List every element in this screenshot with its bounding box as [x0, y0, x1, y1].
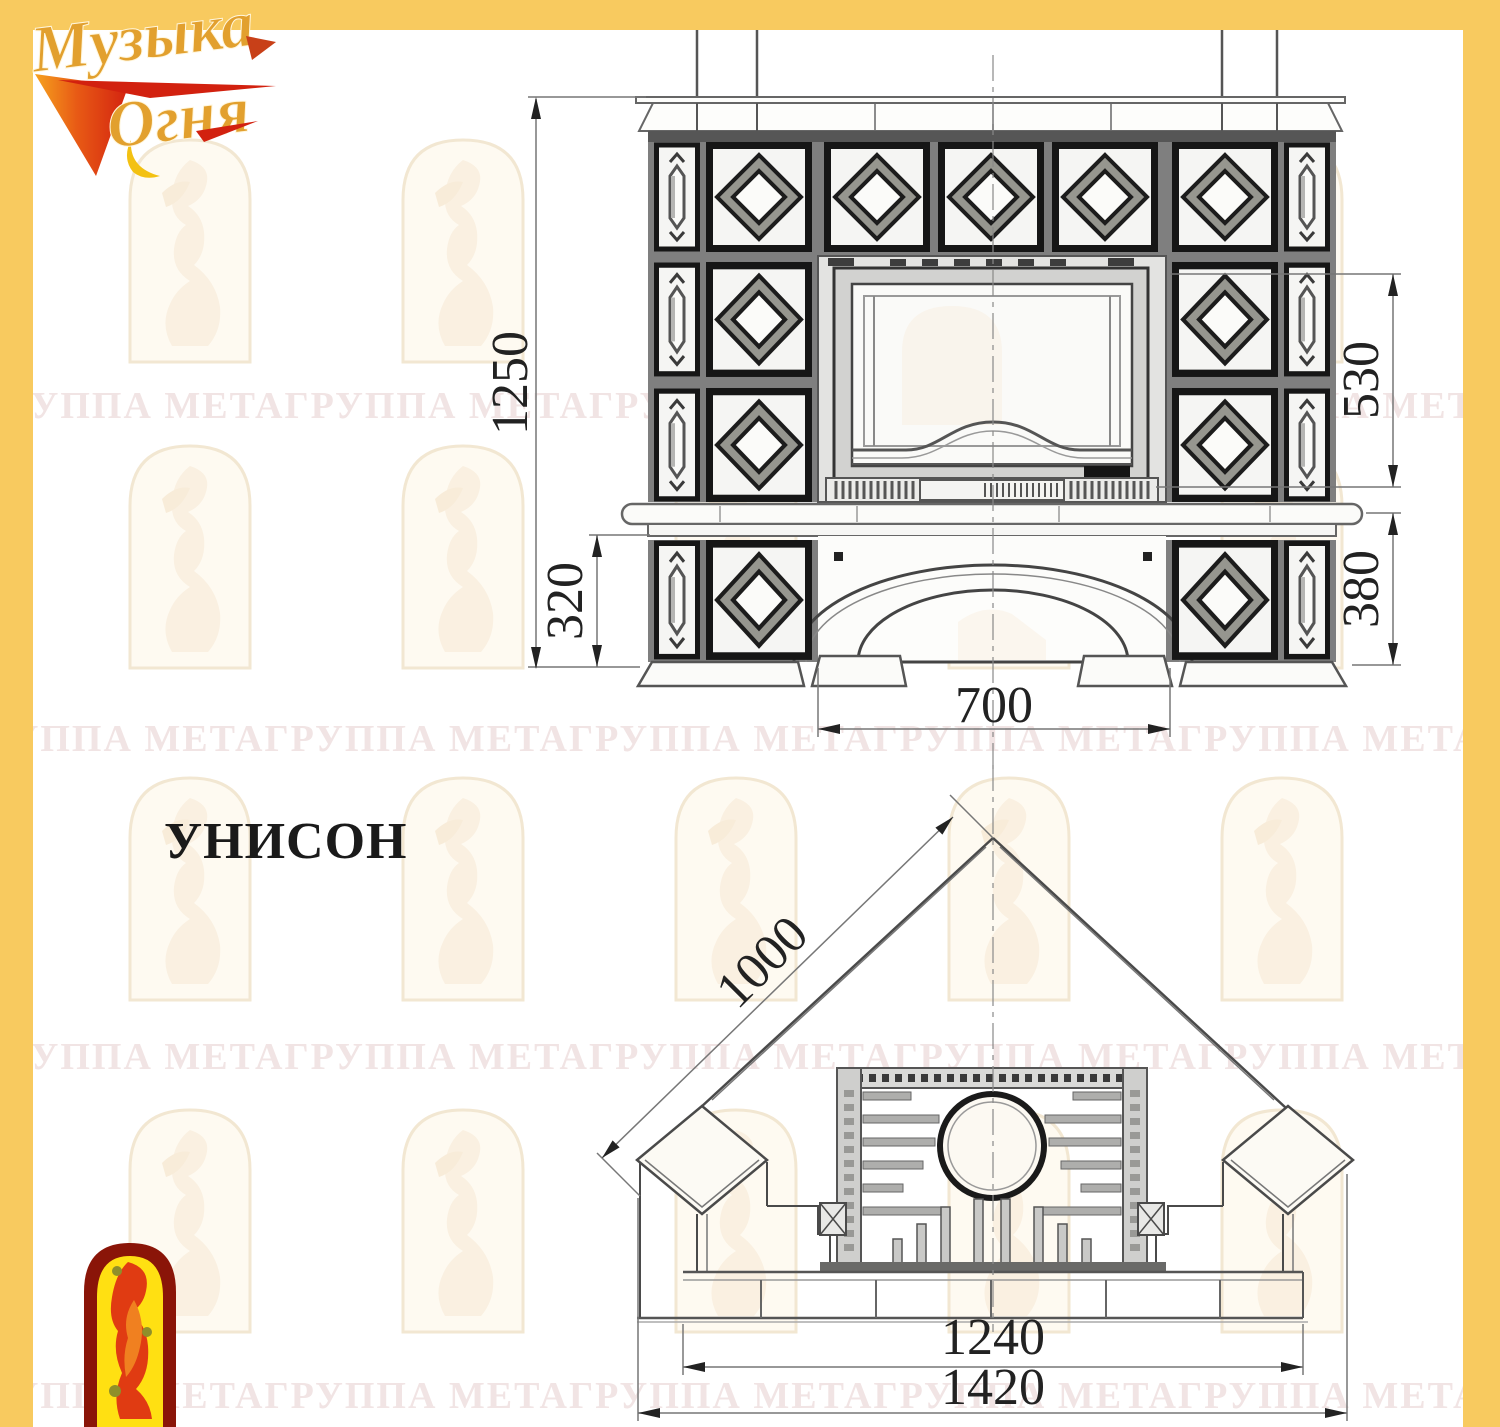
svg-text:1420: 1420	[941, 1359, 1045, 1416]
svg-text:320: 320	[537, 562, 594, 640]
svg-text:УНИСОН: УНИСОН	[164, 813, 408, 870]
svg-text:380: 380	[1333, 550, 1390, 628]
svg-text:1240: 1240	[941, 1309, 1045, 1366]
svg-text:700: 700	[955, 677, 1033, 734]
svg-text:1250: 1250	[482, 331, 539, 435]
svg-text:530: 530	[1333, 341, 1390, 419]
